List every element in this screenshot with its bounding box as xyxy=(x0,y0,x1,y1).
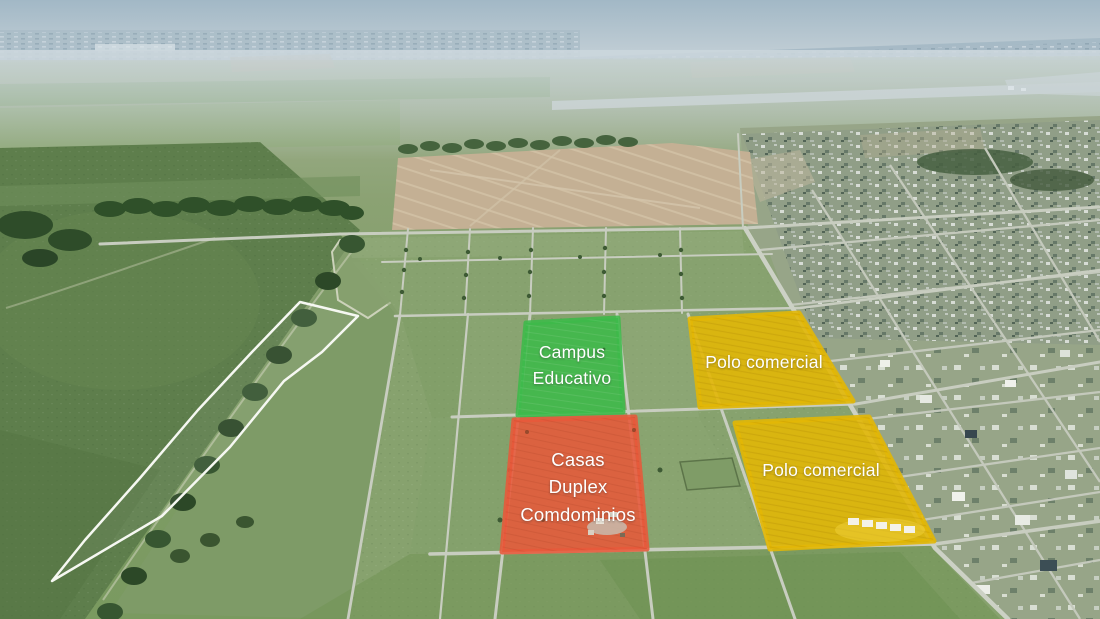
fenced-plot xyxy=(680,458,740,490)
sheds-row xyxy=(835,518,925,542)
aerial-scene xyxy=(0,0,1100,619)
cleared-dirt-area xyxy=(392,143,758,230)
aerial-development-photo: Campus Educativo Polo comercial Casas Du… xyxy=(0,0,1100,619)
